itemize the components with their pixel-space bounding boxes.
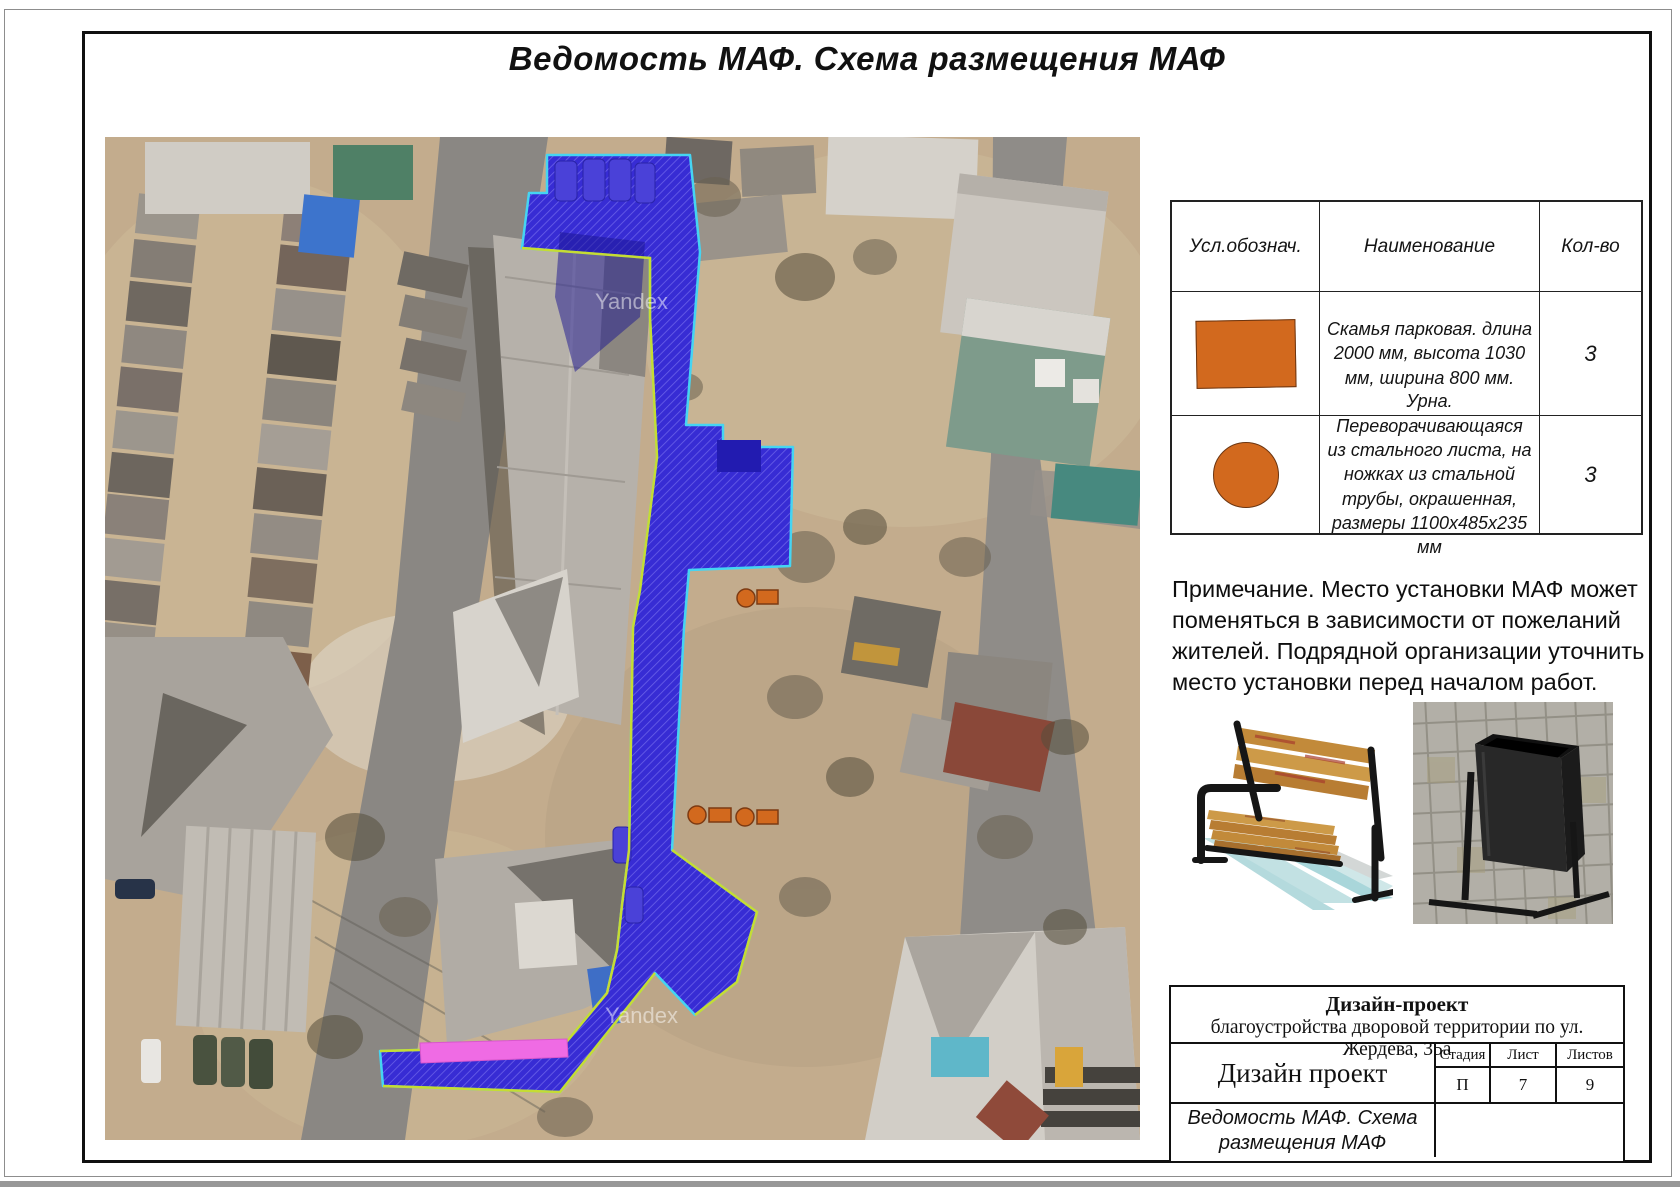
stage-value: П: [1436, 1068, 1491, 1102]
urn-marker: [737, 589, 755, 607]
urn-marker: [736, 808, 754, 826]
note-text: Примечание. Место установки МАФ может по…: [1172, 574, 1658, 698]
table-row-symbol: [1172, 416, 1320, 533]
map-watermark: Yandex: [605, 1003, 678, 1028]
urn-circle-symbol: [1213, 442, 1279, 508]
table-header-qty: Кол-во: [1540, 202, 1641, 292]
design-sheet: Ведомость МАФ. Схема размещения МАФ: [0, 0, 1680, 1187]
empty-cell: [1436, 1104, 1623, 1157]
bench-marker: [757, 590, 778, 604]
sheet-label: Лист: [1491, 1044, 1557, 1068]
stage-sheet-grid: Стадия Лист Листов П 7 9: [1436, 1044, 1623, 1102]
urn-marker: [688, 806, 706, 824]
project-name-bold: Дизайн-проект: [1171, 992, 1623, 1017]
map-watermark: Yandex: [595, 289, 668, 314]
maf-table: Усл.обознач. Наименование Кол-во Скамья …: [1170, 200, 1643, 535]
table-row-name: Урна. Переворачивающаяся из стального ли…: [1320, 416, 1540, 533]
table-header-name: Наименование: [1320, 202, 1540, 292]
bench-photo: [1185, 698, 1393, 913]
stage-label: Стадия: [1436, 1044, 1491, 1068]
aerial-map-image: Yandex Yandex: [105, 137, 1140, 1140]
organization-name: Дизайн проект: [1171, 1044, 1436, 1102]
page-title: Ведомость МАФ. Схема размещения МАФ: [82, 40, 1652, 78]
table-row-symbol: [1172, 292, 1320, 416]
table-header-symbol: Усл.обознач.: [1172, 202, 1320, 292]
bench-marker: [709, 808, 731, 822]
sheets-value: 9: [1557, 1068, 1623, 1102]
aerial-map: Yandex Yandex: [105, 137, 1140, 1140]
title-block: Дизайн-проект благоустройства дворовой т…: [1169, 985, 1625, 1163]
trash-bin-photo: [1413, 702, 1613, 924]
title-block-bottom-row: Ведомость МАФ. Схема размещения МАФ: [1171, 1104, 1623, 1157]
table-row-qty: 3: [1540, 292, 1641, 416]
title-block-project: Дизайн-проект благоустройства дворовой т…: [1171, 987, 1623, 1044]
sheet-value: 7: [1491, 1068, 1557, 1102]
sheet-title-cell: Ведомость МАФ. Схема размещения МАФ: [1171, 1104, 1436, 1157]
sheets-label: Листов: [1557, 1044, 1623, 1068]
bottom-edge-strip: [0, 1181, 1680, 1187]
bench-rectangle-symbol: [1195, 319, 1296, 389]
title-block-middle-row: Дизайн проект Стадия Лист Листов П 7 9: [1171, 1044, 1623, 1104]
bench-marker: [757, 810, 778, 824]
table-row-qty: 3: [1540, 416, 1641, 533]
